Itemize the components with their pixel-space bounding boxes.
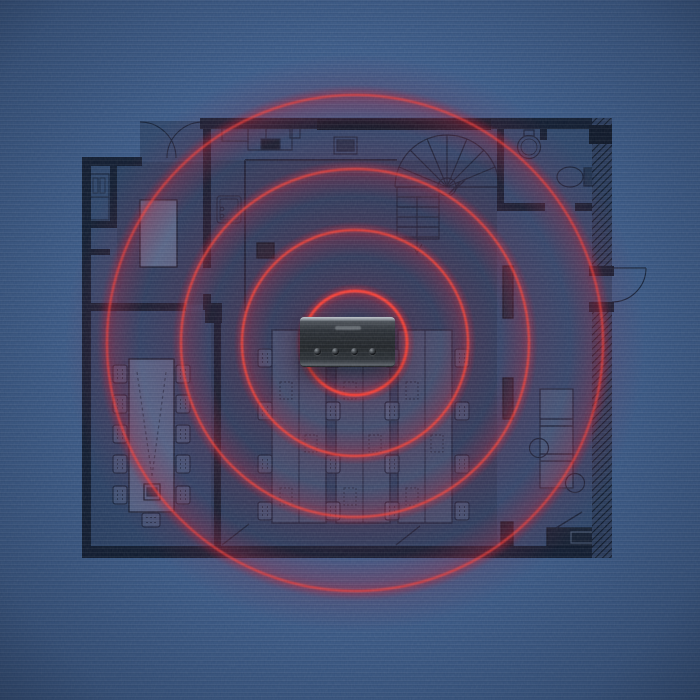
bottom-middle-door-leaf — [396, 526, 420, 545]
desk-chairs — [258, 349, 469, 520]
corner-desk — [547, 512, 602, 547]
conference-room-floor — [91, 311, 214, 545]
glass-partition — [245, 160, 397, 311]
entrance-double-door — [140, 122, 203, 158]
conference-table-group — [129, 359, 174, 512]
wall-basin — [217, 196, 241, 223]
right-exterior-door — [612, 268, 646, 302]
conference-chairs — [113, 365, 190, 527]
toilet — [557, 167, 583, 187]
radiator-lower — [503, 378, 513, 419]
hatched-wall-upper — [592, 118, 612, 266]
device-brand-logo-mark — [335, 326, 361, 330]
sink-2 — [566, 474, 585, 493]
meeting-table — [140, 200, 177, 267]
sink-1 — [530, 439, 549, 458]
device-button-icon — [369, 348, 376, 355]
wall-pier — [501, 522, 513, 546]
washroom-fixtures — [518, 130, 594, 187]
wall-cabinets — [222, 123, 300, 150]
bottom-left-door-leaf — [222, 524, 249, 545]
conference-table — [129, 359, 174, 512]
closet-shelves — [90, 174, 109, 220]
device-button-icon — [314, 348, 321, 355]
tv-panel — [334, 137, 357, 154]
speakerphone-device — [300, 317, 395, 367]
desk-row-3 — [398, 330, 452, 523]
stair-direction-arrow — [412, 196, 422, 253]
curved-stairs — [395, 135, 499, 253]
device-button-icon — [332, 348, 339, 355]
floor-cabinet — [257, 243, 274, 258]
kitchenette-counter — [530, 389, 585, 493]
radiator-upper — [503, 266, 513, 318]
poster-canvas — [0, 0, 700, 700]
hatched-wall-lower — [592, 312, 612, 558]
meeting-room-floor — [117, 162, 211, 305]
device-button-icon — [351, 348, 358, 355]
round-basin — [518, 136, 541, 159]
